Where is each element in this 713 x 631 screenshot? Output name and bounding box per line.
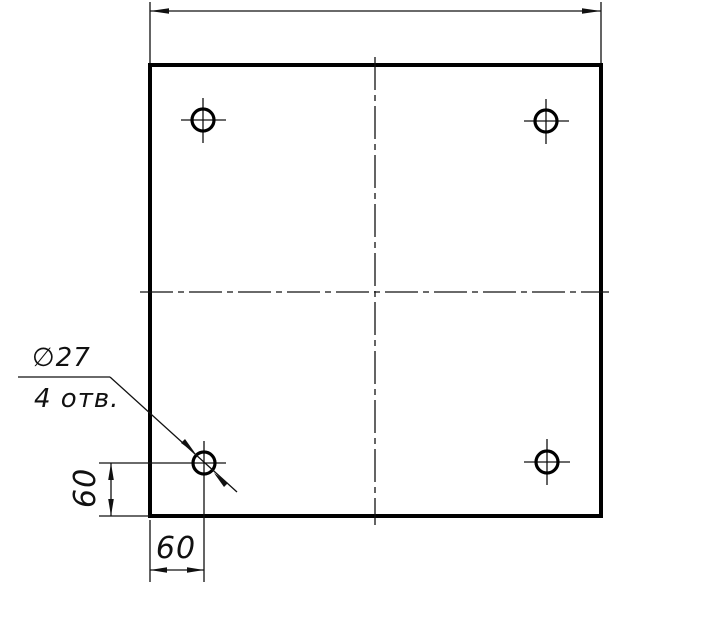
top-width-dimension — [150, 2, 601, 63]
plate-drawing: 60 60 ∅27 4 отв. — [0, 0, 713, 631]
hole-bottom-right — [524, 439, 570, 485]
holes — [99, 98, 570, 582]
leader-arrowhead-upper — [181, 439, 195, 453]
arrowhead-left — [150, 567, 167, 573]
horizontal-offset-dimension: 60 — [150, 520, 204, 582]
horizontal-offset-value: 60 — [156, 531, 196, 566]
vertical-offset-value: 60 — [68, 468, 103, 508]
hole-diameter-label: ∅27 — [32, 343, 91, 373]
vertical-offset-dimension: 60 — [68, 463, 150, 516]
hole-count-label: 4 отв. — [34, 384, 119, 414]
leader-arrowhead-lower — [214, 473, 228, 487]
hole-top-left — [181, 98, 226, 143]
arrowhead-left — [150, 8, 169, 14]
arrowhead-right — [582, 8, 601, 14]
hole-top-right — [524, 99, 569, 144]
technical-drawing-canvas: 60 60 ∅27 4 отв. — [0, 0, 713, 631]
arrowhead-up — [108, 463, 114, 480]
arrowhead-right — [187, 567, 204, 573]
arrowhead-down — [108, 499, 114, 516]
leader-diagonal-line — [110, 377, 237, 492]
